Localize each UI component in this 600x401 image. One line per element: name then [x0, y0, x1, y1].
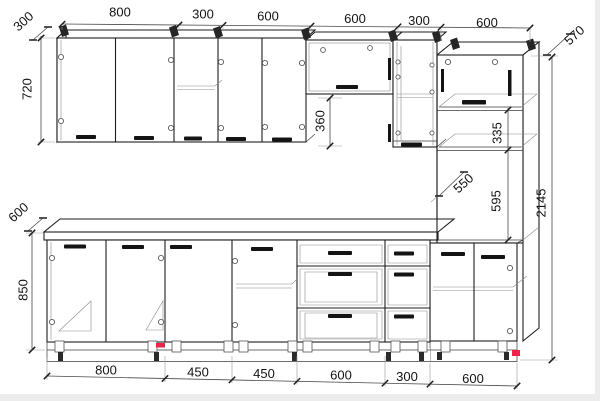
dim-bottom-800: 800	[95, 362, 117, 377]
dim-top-300-b: 300	[408, 13, 430, 28]
dim-bottom-450-b: 450	[253, 366, 275, 381]
dim-top-300: 300	[192, 6, 214, 21]
dim-wall-depth-300: 300	[10, 8, 36, 34]
bottom-dimension-labels: 800 450 450 600 300 600	[95, 362, 484, 386]
dim-bottom-600-a: 600	[330, 367, 352, 382]
dim-bottom-600-b: 600	[462, 371, 484, 386]
wall-cabinet-600-lift-door	[306, 32, 402, 94]
tall-cabinet-600	[430, 38, 539, 363]
countertop	[44, 219, 454, 240]
dim-top-800: 800	[109, 4, 131, 19]
dim-base-height-850: 850	[15, 279, 30, 301]
wall-cabinets	[57, 25, 446, 148]
red-marker-right	[512, 350, 520, 356]
drawing-canvas: 800 300 600 600 300 600 800 450 450 600 …	[0, 0, 600, 401]
wall-cabinet-run	[57, 30, 315, 142]
wall-run-front	[57, 38, 306, 142]
red-marker-left	[156, 343, 165, 348]
dim-base-depth-600: 600	[5, 199, 31, 225]
dim-gap-360: 360	[312, 110, 327, 132]
dim-bottom-300: 300	[396, 369, 418, 384]
base-plinth	[47, 341, 430, 362]
dim-section-335: 335	[489, 122, 504, 144]
dim-section-595: 595	[488, 190, 503, 212]
base-run-front	[47, 240, 430, 342]
base-cabinets	[44, 219, 454, 362]
cabinet-technical-drawing: 800 300 600 600 300 600 800 450 450 600 …	[0, 0, 600, 401]
dim-total-height-2145: 2145	[533, 189, 548, 218]
dim-top-600-c: 600	[476, 15, 498, 30]
dim-wall-height-720: 720	[19, 78, 34, 100]
lift-door-handle	[336, 85, 358, 89]
dim-top-600-b: 600	[344, 11, 366, 26]
dim-bottom-450-a: 450	[187, 364, 209, 379]
tall-cabinet-plinth	[430, 341, 517, 362]
wall-run-top-face	[57, 30, 315, 38]
dim-tall-depth-570: 570	[561, 22, 587, 48]
dim-top-600-a: 600	[257, 8, 279, 23]
